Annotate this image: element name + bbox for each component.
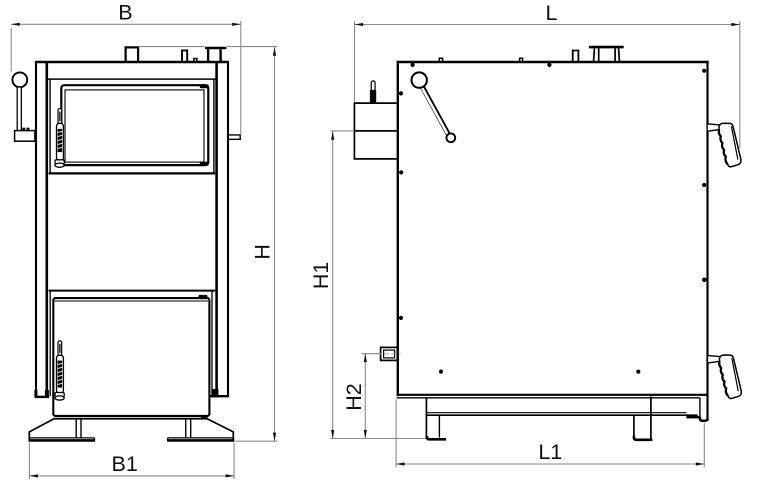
svg-text:H: H <box>251 244 275 260</box>
svg-text:L1: L1 <box>538 440 562 464</box>
svg-text:L: L <box>546 1 558 25</box>
svg-text:H1: H1 <box>309 262 333 289</box>
svg-text:B: B <box>118 1 132 25</box>
svg-text:B1: B1 <box>112 452 138 476</box>
svg-text:H2: H2 <box>342 383 366 410</box>
